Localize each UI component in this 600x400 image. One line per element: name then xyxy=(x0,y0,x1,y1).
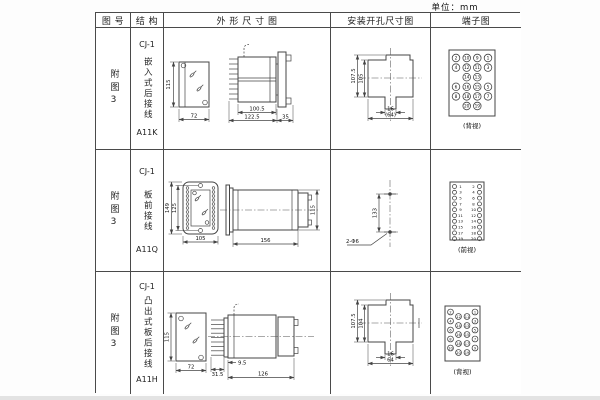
svg-text:115: 115 xyxy=(165,331,171,341)
svg-text:7: 7 xyxy=(486,94,489,100)
svg-text:31.5: 31.5 xyxy=(212,372,224,378)
svg-text:2: 2 xyxy=(454,56,457,62)
svg-text:125: 125 xyxy=(172,203,178,213)
svg-text:72: 72 xyxy=(191,114,198,120)
svg-text:10: 10 xyxy=(448,346,452,350)
svg-text:2: 2 xyxy=(472,184,475,189)
svg-text:115: 115 xyxy=(166,79,172,89)
svg-text:15: 15 xyxy=(458,225,463,230)
install-drawing-a11k: 107.5 105 16 (64) xyxy=(331,28,431,150)
svg-text:4: 4 xyxy=(472,190,475,195)
svg-text:13: 13 xyxy=(474,75,480,81)
svg-text:115: 115 xyxy=(311,205,317,215)
relay-type: CJ-1 xyxy=(139,167,155,176)
seal-mark-icon xyxy=(189,70,196,77)
svg-text:19: 19 xyxy=(474,104,480,110)
view-caption: (前视) xyxy=(457,245,475,254)
svg-text:8: 8 xyxy=(449,337,451,341)
page-bottom-edge xyxy=(0,396,600,400)
svg-text:11: 11 xyxy=(464,314,468,318)
relay-type: CJ-1 xyxy=(139,282,155,291)
header-fig-no: 图 号 xyxy=(96,13,131,28)
svg-text:6: 6 xyxy=(472,196,475,201)
svg-text:9: 9 xyxy=(475,56,478,62)
svg-text:4: 4 xyxy=(454,65,457,71)
svg-text:105: 105 xyxy=(195,236,205,242)
svg-text:7: 7 xyxy=(473,337,475,341)
fig-no-a11h: 附图3 xyxy=(96,272,131,394)
svg-text:16: 16 xyxy=(456,332,460,336)
svg-text:11: 11 xyxy=(474,65,480,71)
svg-text:107.5: 107.5 xyxy=(351,313,357,328)
svg-text:1: 1 xyxy=(459,184,462,189)
svg-text:1: 1 xyxy=(473,310,475,314)
svg-text:5: 5 xyxy=(486,84,489,90)
fig-no-a11k: 附图3 xyxy=(96,28,131,150)
svg-text:2-Φ6: 2-Φ6 xyxy=(346,239,359,245)
svg-text:18: 18 xyxy=(463,94,469,100)
relay-type: CJ-1 xyxy=(139,40,155,49)
svg-text:7: 7 xyxy=(459,201,462,206)
svg-text:133: 133 xyxy=(373,208,379,218)
svg-text:104: 104 xyxy=(359,317,365,328)
model-code: A11H xyxy=(136,375,158,384)
svg-text:12: 12 xyxy=(463,65,469,71)
outline-drawing-a11k: 115 72 xyxy=(164,28,331,150)
svg-text:6: 6 xyxy=(449,328,451,332)
svg-text:17: 17 xyxy=(464,341,468,345)
svg-text:18: 18 xyxy=(471,230,476,235)
svg-text:3: 3 xyxy=(473,319,475,323)
svg-text:14: 14 xyxy=(471,219,476,224)
svg-text:4: 4 xyxy=(449,319,452,323)
model-code: A11Q xyxy=(136,245,158,254)
svg-text:9: 9 xyxy=(473,346,475,350)
mounting-style: 板前接线 xyxy=(143,190,152,232)
svg-text:19: 19 xyxy=(458,236,463,241)
header-structure: 结 构 xyxy=(131,13,164,28)
svg-text:15: 15 xyxy=(464,332,468,336)
fig-no-a11q: 附图3 xyxy=(96,150,131,272)
view-caption: (背视) xyxy=(462,121,480,130)
terminal-grid: 1234567891011121314151617181920 xyxy=(452,184,481,241)
svg-text:2: 2 xyxy=(449,310,451,314)
mounting-style: 凸出式板后接线 xyxy=(143,296,152,370)
svg-text:(64): (64) xyxy=(385,113,396,119)
svg-text:122.5: 122.5 xyxy=(244,115,259,121)
svg-text:126: 126 xyxy=(258,371,269,377)
svg-text:15: 15 xyxy=(474,84,480,90)
header-outline: 外 形 尺 寸 图 xyxy=(164,13,331,28)
svg-text:18: 18 xyxy=(456,341,460,345)
svg-text:12: 12 xyxy=(456,314,460,318)
outline-drawing-a11q: 149 125 105 xyxy=(164,150,331,272)
svg-text:5: 5 xyxy=(473,328,475,332)
svg-text:64: 64 xyxy=(387,357,394,363)
terminal-grid: 2468101214161820111315171913579 xyxy=(447,309,477,355)
svg-text:149: 149 xyxy=(165,203,171,213)
spec-table: 图 号 结 构 外 形 尺 寸 图 安装开孔尺寸图 端子图 附图3 CJ-1 嵌… xyxy=(95,12,520,393)
svg-text:8: 8 xyxy=(472,201,475,206)
svg-text:3: 3 xyxy=(459,190,462,195)
svg-text:156: 156 xyxy=(260,238,271,244)
terminal-diagram-a11k: 2109141211314136161558181772019 (背视) xyxy=(431,28,521,150)
document-page: 单位：mm 图 号 结 构 外 形 尺 寸 图 安装开孔尺寸图 端子图 附图3 … xyxy=(0,0,600,400)
svg-text:17: 17 xyxy=(458,230,463,235)
svg-text:20: 20 xyxy=(456,350,460,354)
svg-text:1: 1 xyxy=(486,56,489,62)
svg-text:16: 16 xyxy=(463,84,469,90)
svg-text:107.5: 107.5 xyxy=(351,68,357,83)
svg-text:9.5: 9.5 xyxy=(238,360,246,366)
view-caption: (背视) xyxy=(453,367,471,376)
svg-text:3: 3 xyxy=(486,65,489,71)
header-install: 安装开孔尺寸图 xyxy=(331,13,431,28)
terminal-studs xyxy=(229,59,238,99)
svg-text:13: 13 xyxy=(458,219,463,224)
seal-mark-icon xyxy=(192,336,199,343)
svg-text:100.5: 100.5 xyxy=(249,107,264,113)
seal-mark-icon xyxy=(196,84,203,91)
svg-text:72: 72 xyxy=(188,364,195,370)
mounting-style: 嵌入式后接线 xyxy=(143,57,152,120)
svg-text:16: 16 xyxy=(471,225,476,230)
model-code: A11K xyxy=(137,128,158,137)
svg-text:13: 13 xyxy=(464,323,468,327)
install-drawing-a11h: 107.5 104 16 64 xyxy=(331,272,431,394)
svg-text:17: 17 xyxy=(474,94,480,100)
svg-text:8: 8 xyxy=(454,94,457,100)
svg-text:5: 5 xyxy=(459,196,462,201)
svg-text:14: 14 xyxy=(463,75,469,81)
seal-mark-icon xyxy=(202,208,209,215)
svg-text:19: 19 xyxy=(464,350,468,354)
svg-text:11: 11 xyxy=(458,213,463,218)
svg-text:9: 9 xyxy=(459,207,462,212)
svg-text:14: 14 xyxy=(456,323,461,327)
outline-drawing-a11h: 115 72 xyxy=(164,272,331,394)
svg-text:12: 12 xyxy=(471,213,476,218)
svg-text:6: 6 xyxy=(454,84,457,90)
install-drawing-a11q: 133 2-Φ6 xyxy=(331,150,431,272)
svg-text:10: 10 xyxy=(463,56,469,62)
seal-mark-icon xyxy=(195,194,202,201)
svg-text:20: 20 xyxy=(471,236,476,241)
terminal-studs xyxy=(211,320,224,355)
terminal-diagram-a11q: 1234567891011121314151617181920 (前视) xyxy=(431,150,521,272)
svg-text:10: 10 xyxy=(471,207,476,212)
svg-text:105: 105 xyxy=(359,73,365,83)
structure-a11k: CJ-1 嵌入式后接线 A11K xyxy=(131,28,164,150)
structure-a11q: CJ-1 板前接线 A11Q xyxy=(131,150,164,272)
svg-text:35: 35 xyxy=(282,115,289,121)
header-terminal: 端子图 xyxy=(431,13,521,28)
structure-a11h: CJ-1 凸出式板后接线 A11H xyxy=(131,272,164,394)
seal-mark-icon xyxy=(184,322,191,329)
svg-text:20: 20 xyxy=(463,104,469,110)
terminal-grid: 2109141211314136161558181772019 xyxy=(452,54,492,110)
terminal-diagram-a11h: 2468101214161820111315171913579 (背视) xyxy=(431,272,521,394)
